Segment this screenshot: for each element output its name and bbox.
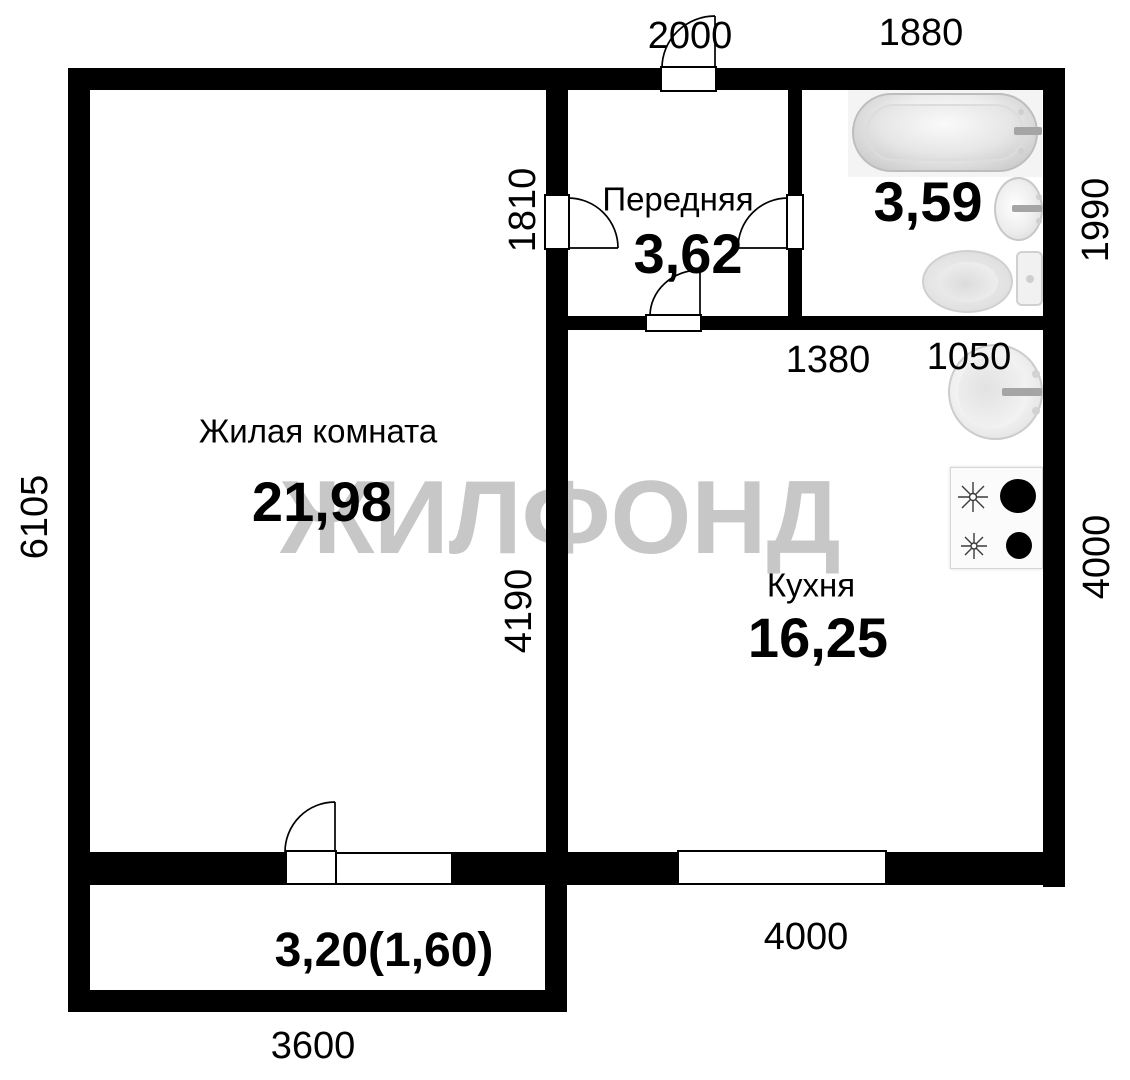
toilet-tank — [1016, 251, 1043, 306]
balcony-window — [335, 852, 453, 885]
toilet-bowl-inner — [938, 262, 998, 302]
wall-balcony-bottom — [68, 990, 567, 1012]
room-label-balcony-area: 3,20(1,60) — [275, 927, 494, 975]
room-label-kitchen-area: 16,25 — [748, 610, 888, 666]
stove-burner-small — [1006, 532, 1032, 559]
dim-label-entrance-width: 2000 — [648, 17, 733, 55]
dim-label-living-inner: 4190 — [500, 569, 538, 654]
stove-burner-large — [1000, 479, 1036, 513]
dim-label-kitchen-window: 4000 — [764, 918, 849, 956]
bathroom-door-opening — [786, 194, 804, 250]
bathroom-sink-icon — [994, 177, 1043, 241]
dim-label-bathroom-depth: 1990 — [1077, 178, 1115, 263]
room-label-bathroom-area: 3,59 — [874, 174, 983, 230]
dim-label-hall-door: 1810 — [504, 168, 542, 253]
dim-label-kitchen-top-right: 1050 — [927, 338, 1012, 376]
dim-label-kitchen-depth: 4000 — [1078, 515, 1116, 600]
kitchen-window — [677, 850, 887, 885]
dim-label-kitchen-top-left: 1380 — [786, 341, 871, 379]
wall-balcony-right — [545, 852, 567, 1012]
wall-right — [1043, 68, 1065, 887]
kitchen-door-opening — [645, 314, 702, 332]
room-label-kitchen-name: Кухня — [767, 569, 855, 602]
room-label-hallway-name: Передняя — [602, 183, 753, 216]
floor-plan: ЖИЛФОНД — [0, 0, 1130, 1080]
entrance-door-opening — [660, 66, 717, 92]
balcony-door-opening — [285, 850, 337, 885]
room-label-living-name: Жилая комната — [199, 415, 437, 448]
wall-center-vertical — [546, 68, 568, 884]
dim-label-balcony-width: 3600 — [271, 1027, 356, 1065]
bathtub-rim — [866, 104, 1024, 161]
room-label-living-area: 21,98 — [252, 474, 392, 530]
room-label-hallway-area: 3,62 — [634, 226, 743, 282]
balcony-door-arc — [285, 802, 335, 852]
living-hall-door-opening — [544, 194, 570, 250]
dim-label-bathroom-width: 1880 — [879, 14, 964, 52]
wall-kitchen-top — [546, 316, 1065, 330]
dim-label-living-height: 6105 — [16, 475, 54, 560]
